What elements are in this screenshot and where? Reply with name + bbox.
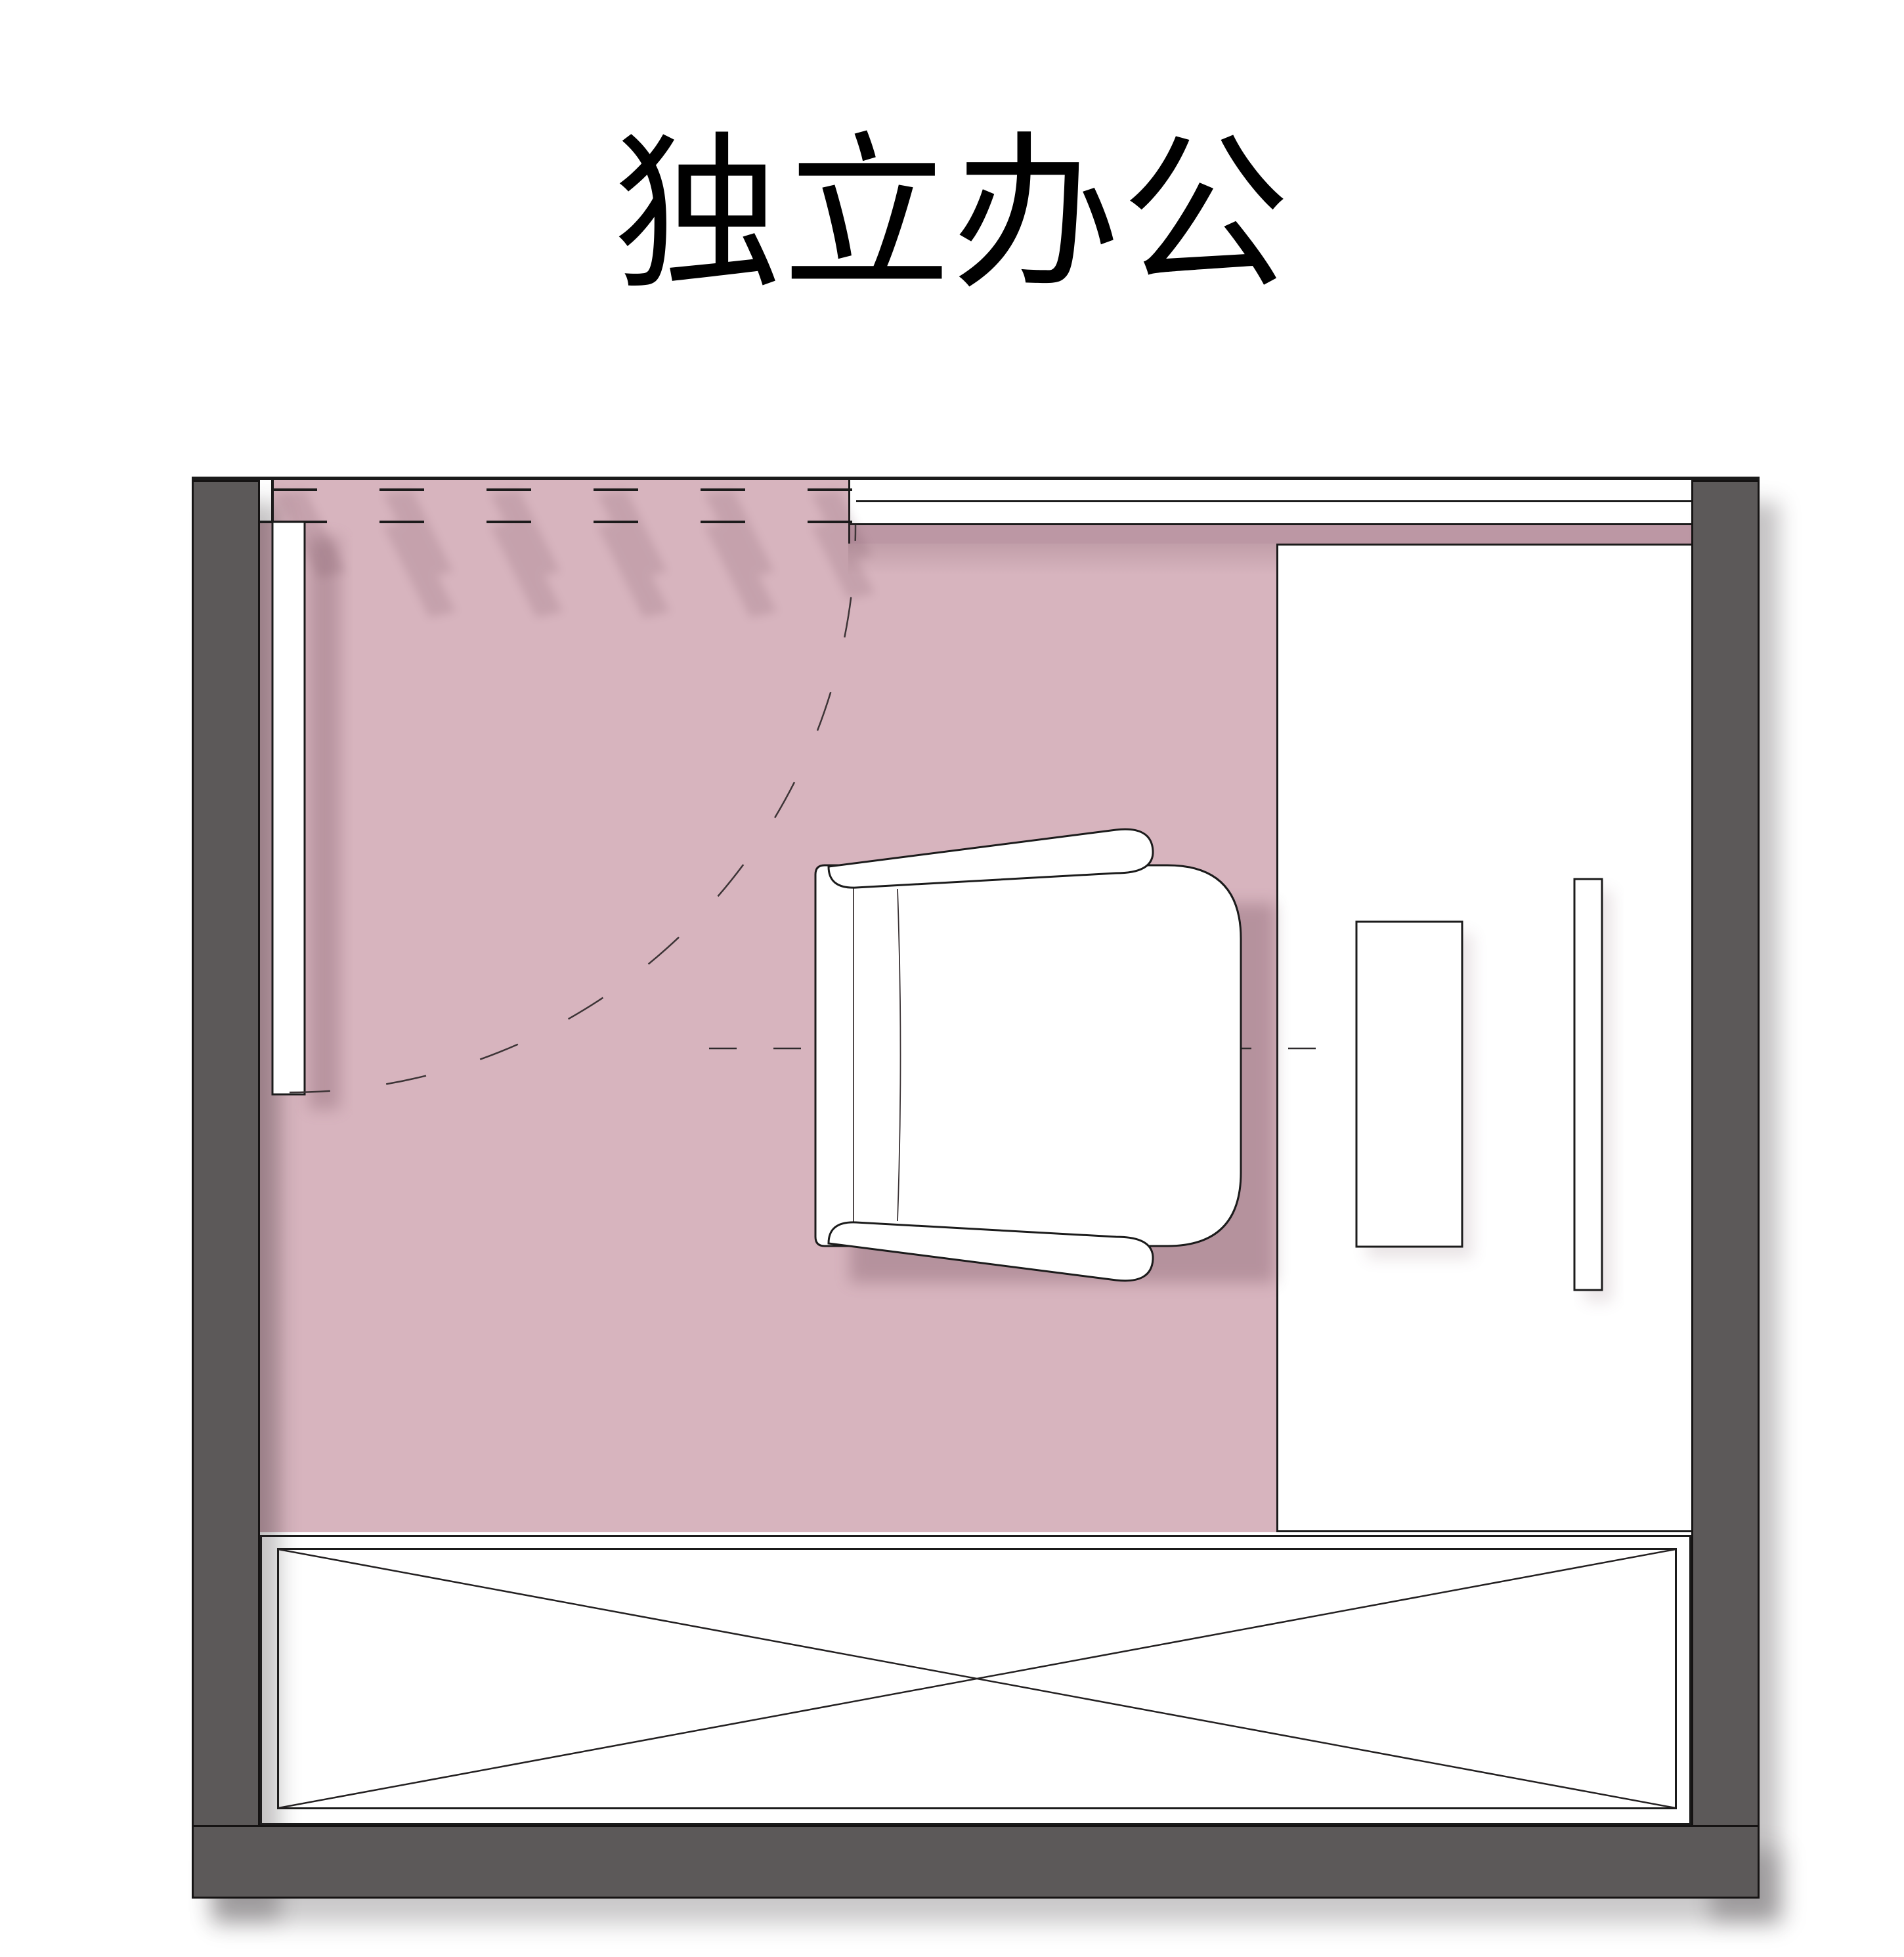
- wall-right: [1691, 480, 1760, 1899]
- sill-shadow: [848, 544, 1276, 575]
- desk-worktop: [1276, 544, 1691, 1532]
- floor-plan: [0, 0, 1904, 1957]
- wall-bottom: [192, 1825, 1760, 1899]
- door-jamb: [260, 480, 272, 522]
- cabinet-inner-panel: [277, 1548, 1677, 1809]
- floor-area: [260, 480, 1276, 1532]
- wall-inner-shadow: [260, 522, 288, 1532]
- window-sill-band: [848, 523, 1691, 544]
- window-glazing-line: [856, 500, 1691, 502]
- floorplan-page: 独立办公: [0, 0, 1904, 1957]
- wall-top-line: [192, 477, 1760, 480]
- wall-left: [192, 480, 260, 1899]
